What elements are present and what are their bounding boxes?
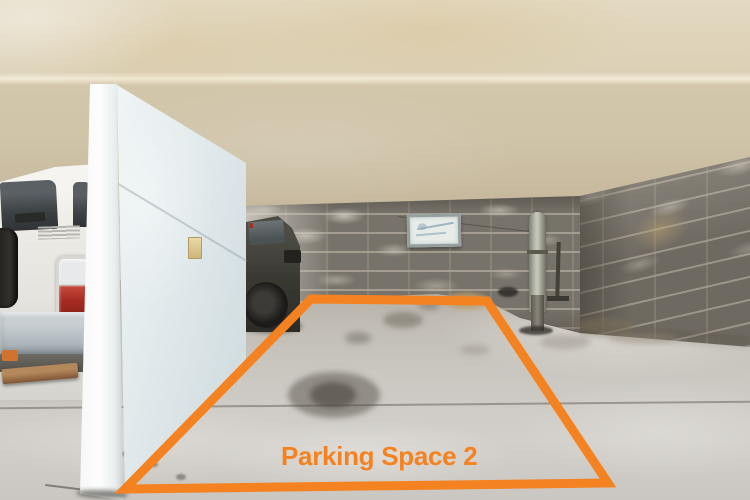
parking-space-overlay <box>0 0 750 500</box>
garage-photo: Parking Space 2 <box>0 0 750 500</box>
parking-space-label: Parking Space 2 <box>281 441 491 471</box>
